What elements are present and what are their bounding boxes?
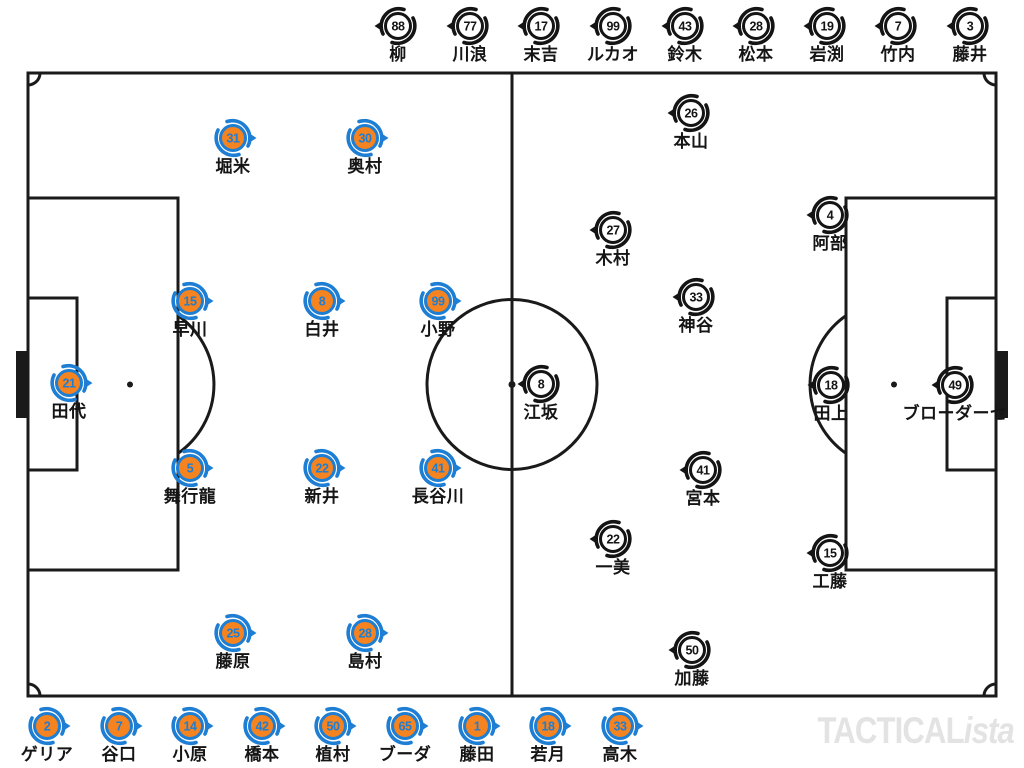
player-marker-a-1[interactable]: 1藤田 [453,702,501,750]
player-marker-b-41[interactable]: 41宮本 [679,446,727,494]
player-name-label: 神谷 [679,311,714,336]
direction-arrow-icon [453,296,462,307]
player-number: 8 [319,295,326,309]
direction-arrow-icon [733,21,742,32]
player-name-label: 田上 [814,399,849,424]
player-number: 18 [825,379,838,393]
player-name-label: 小野 [421,315,456,340]
direction-arrow-icon [662,21,671,32]
player-name-label: 松本 [739,40,774,65]
player-name-label: 工藤 [813,567,848,592]
player-name-label: 川浪 [453,40,488,65]
goal-left [16,351,27,418]
player-marker-b-28[interactable]: 28松本 [732,2,780,50]
direction-arrow-icon [590,225,599,236]
player-name-label: 一美 [596,553,631,578]
player-number: 41 [697,464,710,478]
player-number: 15 [824,547,837,561]
tacticalista-logo: TACTICALista [817,710,1014,752]
player-number: 33 [690,291,703,305]
player-marker-b-22[interactable]: 22一美 [589,515,637,563]
player-number: 88 [392,20,405,34]
corner-arc-top-right [984,73,996,85]
player-name-label: 阿部 [813,229,848,254]
direction-arrow-icon [590,21,599,32]
corner-arc-bottom-left [28,684,40,696]
player-number: 19 [821,20,834,34]
direction-arrow-icon [380,628,389,639]
player-name-label: 白井 [305,315,340,340]
player-marker-a-42[interactable]: 42橋本 [238,702,286,750]
logo-italic-part: ista [964,710,1014,751]
direction-arrow-icon [453,463,462,474]
player-marker-a-8[interactable]: 8白井 [298,277,346,325]
direction-arrow-icon [947,21,956,32]
direction-arrow-icon [807,210,816,221]
player-marker-b-99[interactable]: 99ルカオ [589,2,637,50]
player-number: 31 [227,132,240,146]
player-number: 99 [432,295,445,309]
direction-arrow-icon [807,548,816,559]
player-name-label: 早川 [173,315,208,340]
direction-arrow-icon [635,721,644,732]
player-name-label: 柳 [389,40,407,65]
direction-arrow-icon [84,378,93,389]
player-number: 77 [464,20,477,34]
player-number: 17 [535,20,548,34]
direction-arrow-icon [248,133,257,144]
player-name-label: 奥村 [348,152,383,177]
player-marker-b-50[interactable]: 50加藤 [668,626,716,674]
player-marker-a-25[interactable]: 25藤原 [209,609,257,657]
player-number: 65 [399,720,412,734]
direction-arrow-icon [668,108,677,119]
player-number: 18 [542,720,555,734]
player-number: 28 [359,627,372,641]
player-number: 25 [227,627,240,641]
player-name-label: 島村 [348,647,383,672]
player-number: 99 [607,20,620,34]
player-marker-b-15[interactable]: 15工藤 [806,529,854,577]
direction-arrow-icon [248,628,257,639]
player-marker-b-43[interactable]: 43鈴木 [661,2,709,50]
player-number: 41 [432,462,445,476]
direction-arrow-icon [804,21,813,32]
direction-arrow-icon [277,721,286,732]
player-name-label: 田代 [52,397,87,422]
player-marker-b-3[interactable]: 3藤井 [946,2,994,50]
player-marker-a-21[interactable]: 21田代 [45,359,93,407]
player-marker-a-5[interactable]: 5舞行龍 [166,444,214,492]
direction-arrow-icon [337,296,346,307]
player-number: 49 [949,379,962,393]
direction-arrow-icon [680,465,689,476]
direction-arrow-icon [337,463,346,474]
player-marker-b-27[interactable]: 27木村 [589,206,637,254]
direction-arrow-icon [205,296,214,307]
player-name-label: 藤井 [953,40,988,65]
direction-arrow-icon [590,534,599,545]
player-number: 42 [256,720,269,734]
player-marker-b-49[interactable]: 49ブローダーセ [931,361,979,409]
player-marker-a-14[interactable]: 14小原 [166,702,214,750]
player-number: 21 [63,377,76,391]
player-marker-a-99[interactable]: 99小野 [414,277,462,325]
direction-arrow-icon [205,721,214,732]
player-name-label: 橋本 [245,740,280,765]
player-number: 22 [607,533,620,547]
tactics-board[interactable]: TACTICALista 21田代31堀米30奥村15早川8白井99小野5舞行龍… [0,0,1024,768]
player-number: 15 [184,295,197,309]
player-marker-b-33[interactable]: 33神谷 [672,273,720,321]
player-marker-a-18[interactable]: 18若月 [524,702,572,750]
player-number: 27 [607,224,620,238]
corner-arc-bottom-right [984,684,996,696]
player-number: 8 [538,378,545,392]
player-name-label: 長谷川 [412,482,465,507]
player-marker-a-41[interactable]: 41長谷川 [414,444,462,492]
player-marker-a-50[interactable]: 50植村 [309,702,357,750]
player-marker-b-4[interactable]: 4阿部 [806,191,854,239]
player-marker-b-18[interactable]: 18田上 [807,361,855,409]
player-marker-a-31[interactable]: 31堀米 [209,114,257,162]
player-name-label: ゲリア [21,740,74,765]
player-name-label: 鈴木 [668,40,703,65]
direction-arrow-icon [932,380,941,391]
pitch[interactable] [0,0,1024,768]
player-name-label: ルカオ [587,40,639,65]
player-marker-a-15[interactable]: 15早川 [166,277,214,325]
player-name-label: 木村 [596,244,631,269]
player-name-label: 小原 [173,740,208,765]
direction-arrow-icon [380,133,389,144]
player-marker-a-30[interactable]: 30奥村 [341,114,389,162]
direction-arrow-icon [205,463,214,474]
player-name-label: 藤原 [216,647,251,672]
penalty-spot-right [891,382,897,388]
corner-arc-top-left [28,73,40,85]
player-name-label: ブローダーセ [903,399,1008,424]
player-marker-b-17[interactable]: 17末吉 [517,2,565,50]
player-number: 28 [750,20,763,34]
player-marker-b-7[interactable]: 7竹内 [874,2,922,50]
player-number: 5 [187,462,194,476]
player-name-label: 竹内 [881,40,916,65]
penalty-spot-left [127,382,133,388]
player-name-label: 高木 [603,740,638,765]
player-name-label: 末吉 [524,40,559,65]
player-name-label: 谷口 [102,740,137,765]
player-name-label: 本山 [674,127,709,152]
direction-arrow-icon [447,21,456,32]
player-marker-a-28[interactable]: 28島村 [341,609,389,657]
direction-arrow-icon [875,21,884,32]
player-number: 50 [686,644,699,658]
direction-arrow-icon [518,21,527,32]
player-number: 2 [44,720,51,734]
player-number: 43 [679,20,692,34]
direction-arrow-icon [669,645,678,656]
player-number: 26 [685,107,698,121]
direction-arrow-icon [563,721,572,732]
direction-arrow-icon [134,721,143,732]
player-number: 14 [184,720,197,734]
player-number: 1 [474,720,481,734]
player-marker-a-2[interactable]: 2ゲリア [23,702,71,750]
player-number: 30 [359,132,372,146]
player-marker-b-88[interactable]: 88柳 [374,2,422,50]
direction-arrow-icon [808,380,817,391]
player-number: 4 [827,209,834,223]
player-number: 22 [316,462,329,476]
player-marker-a-33[interactable]: 33高木 [596,702,644,750]
player-number: 3 [967,20,974,34]
player-name-label: 宮本 [686,484,721,509]
player-name-label: 新井 [305,482,340,507]
player-name-label: 藤田 [460,740,495,765]
player-name-label: ブーダ [379,740,432,765]
player-marker-b-19[interactable]: 19岩渕 [803,2,851,50]
player-marker-a-7[interactable]: 7谷口 [95,702,143,750]
player-name-label: 岩渕 [810,40,845,65]
player-marker-a-22[interactable]: 22新井 [298,444,346,492]
direction-arrow-icon [348,721,357,732]
logo-bold-part: TACTICAL [817,710,963,751]
player-name-label: 堀米 [216,152,251,177]
player-name-label: 舞行龍 [164,482,217,507]
player-number: 33 [614,720,627,734]
player-name-label: 若月 [531,740,566,765]
player-marker-a-65[interactable]: 65ブーダ [381,702,429,750]
direction-arrow-icon [518,379,527,390]
player-name-label: 加藤 [675,664,710,689]
direction-arrow-icon [673,292,682,303]
player-number: 7 [116,720,123,734]
player-marker-b-8[interactable]: 8江坂 [517,360,565,408]
player-name-label: 江坂 [524,398,559,423]
player-marker-b-77[interactable]: 77川浪 [446,2,494,50]
player-name-label: 植村 [316,740,351,765]
player-marker-b-26[interactable]: 26本山 [667,89,715,137]
player-number: 7 [895,20,902,34]
direction-arrow-icon [492,721,501,732]
player-number: 50 [327,720,340,734]
direction-arrow-icon [375,21,384,32]
direction-arrow-icon [420,721,429,732]
direction-arrow-icon [62,721,71,732]
center-spot [509,381,516,388]
